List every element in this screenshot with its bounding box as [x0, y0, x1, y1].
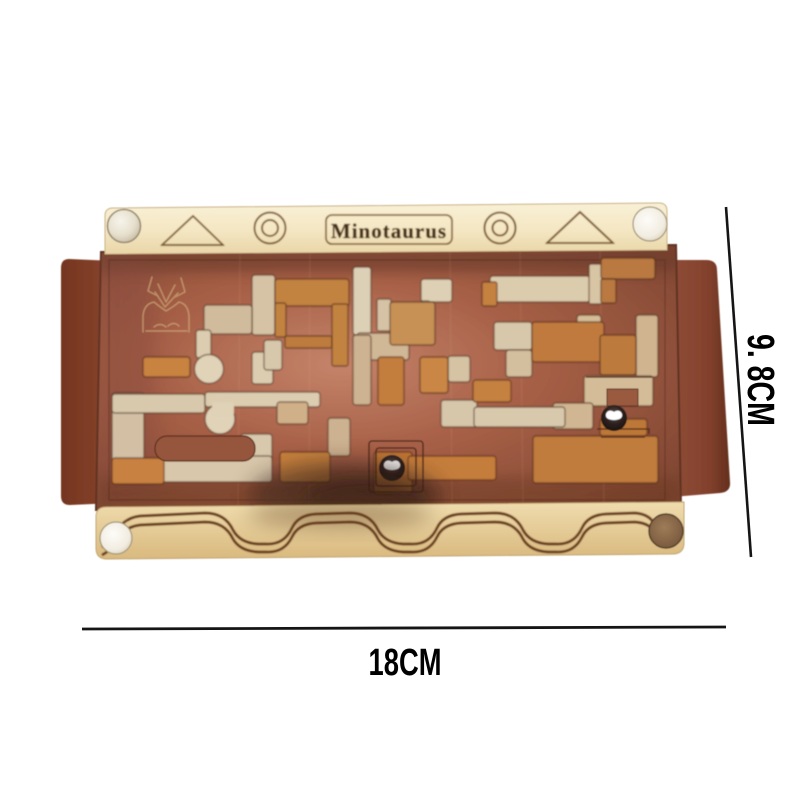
svg-text:Minotaurus: Minotaurus	[331, 219, 447, 243]
svg-text:9. 8CM: 9. 8CM	[739, 334, 781, 426]
svg-text:18CM: 18CM	[369, 642, 442, 684]
